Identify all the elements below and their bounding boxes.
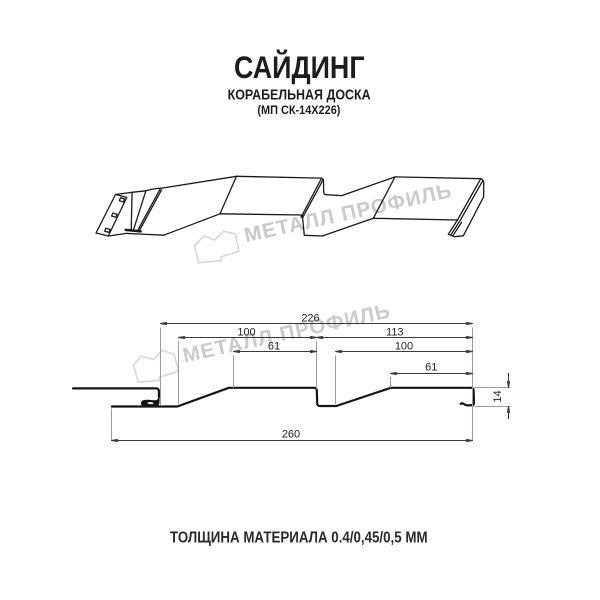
svg-text:МЕТАЛЛ ПРОФИЛЬ: МЕТАЛЛ ПРОФИЛЬ	[181, 299, 393, 367]
svg-text:ТОЛЩИНА МАТЕРИАЛА 0.4/0,45/0,5: ТОЛЩИНА МАТЕРИАЛА 0.4/0,45/0,5 ММ	[170, 530, 428, 547]
svg-text:САЙДИНГ: САЙДИНГ	[234, 49, 365, 85]
svg-text:14: 14	[492, 390, 504, 402]
svg-text:61: 61	[268, 341, 280, 353]
svg-text:КОРАБЕЛЬНАЯ ДОСКА: КОРАБЕЛЬНАЯ ДОСКА	[228, 88, 371, 104]
svg-text:113: 113	[386, 327, 404, 339]
svg-text:260: 260	[282, 429, 300, 441]
svg-text:МЕТАЛЛ ПРОФИЛЬ: МЕТАЛЛ ПРОФИЛЬ	[242, 179, 454, 247]
svg-text:100: 100	[237, 327, 255, 339]
svg-text:100: 100	[395, 341, 413, 353]
svg-text:(МП СК-14Х226): (МП СК-14Х226)	[257, 103, 340, 117]
svg-text:61: 61	[425, 362, 437, 374]
svg-text:226: 226	[301, 313, 319, 325]
